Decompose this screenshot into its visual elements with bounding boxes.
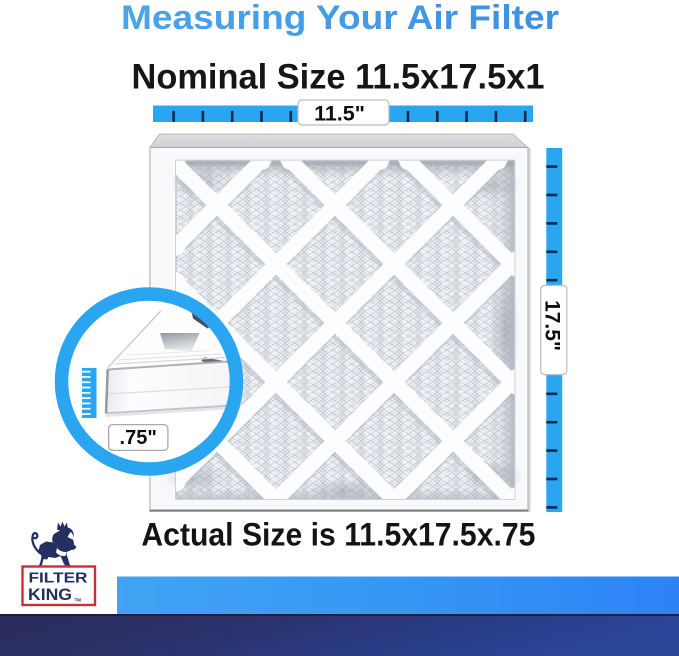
svg-text:TM: TM	[75, 598, 82, 603]
svg-text:KING: KING	[28, 586, 72, 604]
svg-text:Nominal Size 11.5x17.5x1: Nominal Size 11.5x17.5x1	[132, 58, 545, 97]
svg-text:FILTER: FILTER	[29, 570, 88, 587]
svg-text:.75": .75"	[120, 427, 157, 449]
svg-text:Measuring Your Air Filter: Measuring Your Air Filter	[121, 0, 559, 37]
svg-text:11.5": 11.5"	[314, 102, 365, 126]
svg-text:17.5": 17.5"	[540, 300, 563, 351]
svg-text:Actual Size is 11.5x17.5x.75: Actual Size is 11.5x17.5x.75	[141, 517, 535, 553]
